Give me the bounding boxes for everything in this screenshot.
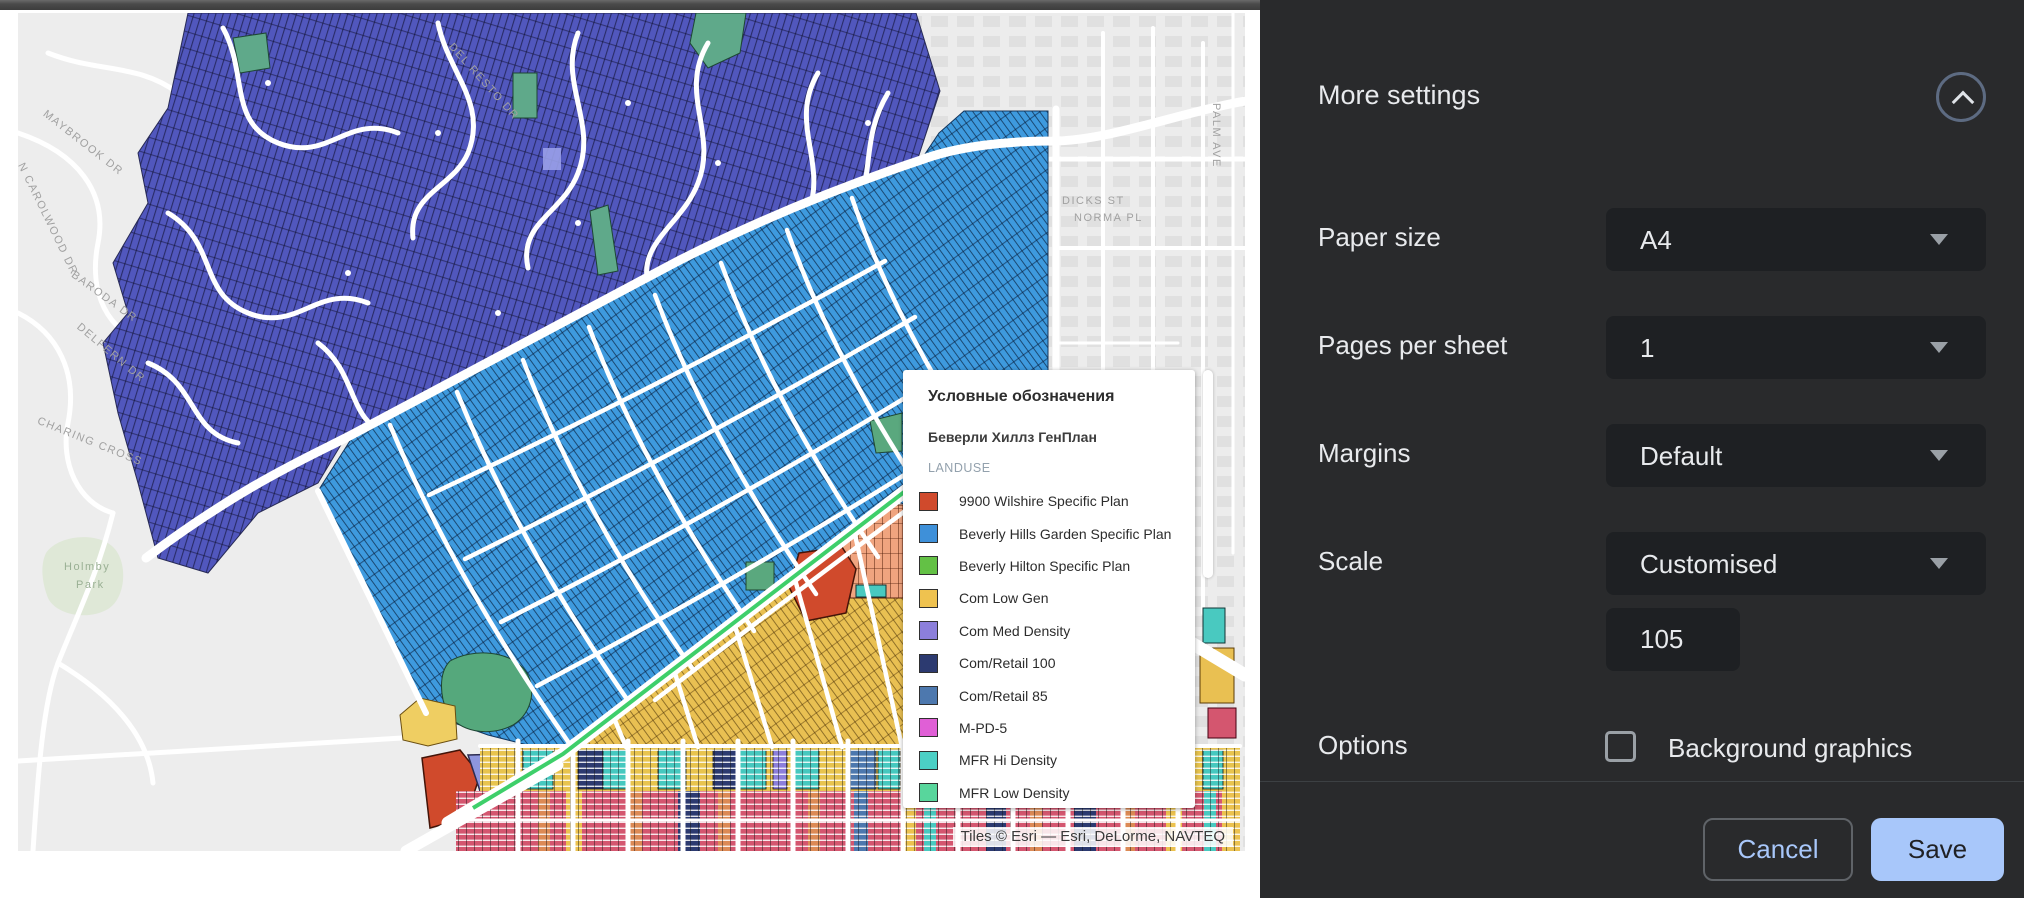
collapse-more-settings-button[interactable] [1936, 72, 1986, 122]
street-label: Holmby [64, 561, 110, 573]
legend-subtitle: Беверли Хиллз ГенПлан [928, 429, 1097, 445]
save-button[interactable]: Save [1871, 818, 2004, 881]
legend-label: M-PD-5 [959, 720, 1007, 736]
legend-item: Com/Retail 85 [903, 679, 1195, 711]
background-graphics-checkbox[interactable] [1605, 731, 1636, 762]
options-label: Options [1318, 730, 1408, 761]
street-label: PALM AVE [1210, 103, 1222, 168]
legend-swatch [919, 589, 938, 608]
legend-label: Com/Retail 85 [959, 688, 1048, 704]
legend-items: 9900 Wilshire Specific PlanBeverly Hills… [903, 485, 1195, 808]
chevron-down-icon [1930, 234, 1948, 245]
legend-swatch [919, 751, 938, 770]
pages-per-sheet-value: 1 [1640, 333, 1654, 364]
legend-label: MFR Hi Density [959, 752, 1057, 768]
legend-item: Beverly Hills Garden Specific Plan [903, 517, 1195, 549]
legend-swatch [919, 654, 938, 673]
legend-item: MFR Hi Density [903, 744, 1195, 776]
more-settings-label[interactable]: More settings [1318, 80, 1480, 111]
legend-label: Beverly Hilton Specific Plan [959, 558, 1130, 574]
street-label: NORMA PL [1074, 212, 1143, 224]
map-legend: Условные обозначения Беверли Хиллз ГенПл… [903, 370, 1195, 808]
legend-label: 9900 Wilshire Specific Plan [959, 493, 1129, 509]
map-canvas: Условные обозначения Беверли Хиллз ГенПл… [18, 13, 1245, 851]
legend-item: M-PD-5 [903, 712, 1195, 744]
legend-item: Beverly Hilton Specific Plan [903, 550, 1195, 582]
legend-scrollbar[interactable] [1203, 370, 1213, 578]
pages-per-sheet-label: Pages per sheet [1318, 330, 1507, 361]
margins-value: Default [1640, 441, 1722, 472]
legend-label: Com Med Density [959, 623, 1070, 639]
legend-title: Условные обозначения [928, 388, 1114, 406]
legend-label: Beverly Hills Garden Specific Plan [959, 526, 1171, 542]
legend-swatch [919, 621, 938, 640]
street-label: DICKS ST [1062, 195, 1125, 207]
scale-custom-input[interactable] [1606, 608, 1740, 671]
legend-swatch [919, 524, 938, 543]
legend-swatch [919, 718, 938, 737]
paper-size-value: A4 [1640, 225, 1672, 256]
margins-select[interactable]: Default [1606, 424, 1986, 487]
legend-label: Com Low Gen [959, 590, 1048, 606]
cancel-button[interactable]: Cancel [1703, 818, 1853, 881]
chevron-down-icon [1930, 450, 1948, 461]
legend-label: MFR Low Density [959, 785, 1069, 801]
paper-size-label: Paper size [1318, 222, 1441, 253]
legend-swatch [919, 783, 938, 802]
legend-label: Com/Retail 100 [959, 655, 1056, 671]
map-attribution: Tiles © Esri — Esri, DeLorme, NAVTEQ [953, 827, 1233, 847]
legend-swatch [919, 556, 938, 575]
chevron-up-icon [1952, 91, 1975, 114]
dialog-footer: Cancel Save [1260, 781, 2024, 899]
print-preview-area: Условные обозначения Беверли Хиллз ГенПл… [0, 0, 1260, 898]
legend-group-label: LANDUSE [928, 461, 991, 475]
preview-top-bar [0, 0, 1260, 10]
legend-item: MFR Low Density [903, 777, 1195, 808]
scale-select[interactable]: Customised [1606, 532, 1986, 595]
chevron-down-icon [1930, 558, 1948, 569]
pages-per-sheet-select[interactable]: 1 [1606, 316, 1986, 379]
margins-label: Margins [1318, 438, 1410, 469]
legend-swatch [919, 686, 938, 705]
background-graphics-label: Background graphics [1668, 733, 1912, 764]
legend-swatch [919, 492, 938, 511]
street-label: Park [76, 579, 105, 591]
legend-item: Com Med Density [903, 615, 1195, 647]
scale-label: Scale [1318, 546, 1383, 577]
legend-item: Com Low Gen [903, 582, 1195, 614]
paper-size-select[interactable]: A4 [1606, 208, 1986, 271]
legend-item: 9900 Wilshire Specific Plan [903, 485, 1195, 517]
chevron-down-icon [1930, 342, 1948, 353]
print-settings-panel: More settings Paper size A4 Pages per sh… [1260, 0, 2024, 898]
legend-item: Com/Retail 100 [903, 647, 1195, 679]
scale-value: Customised [1640, 549, 1777, 580]
